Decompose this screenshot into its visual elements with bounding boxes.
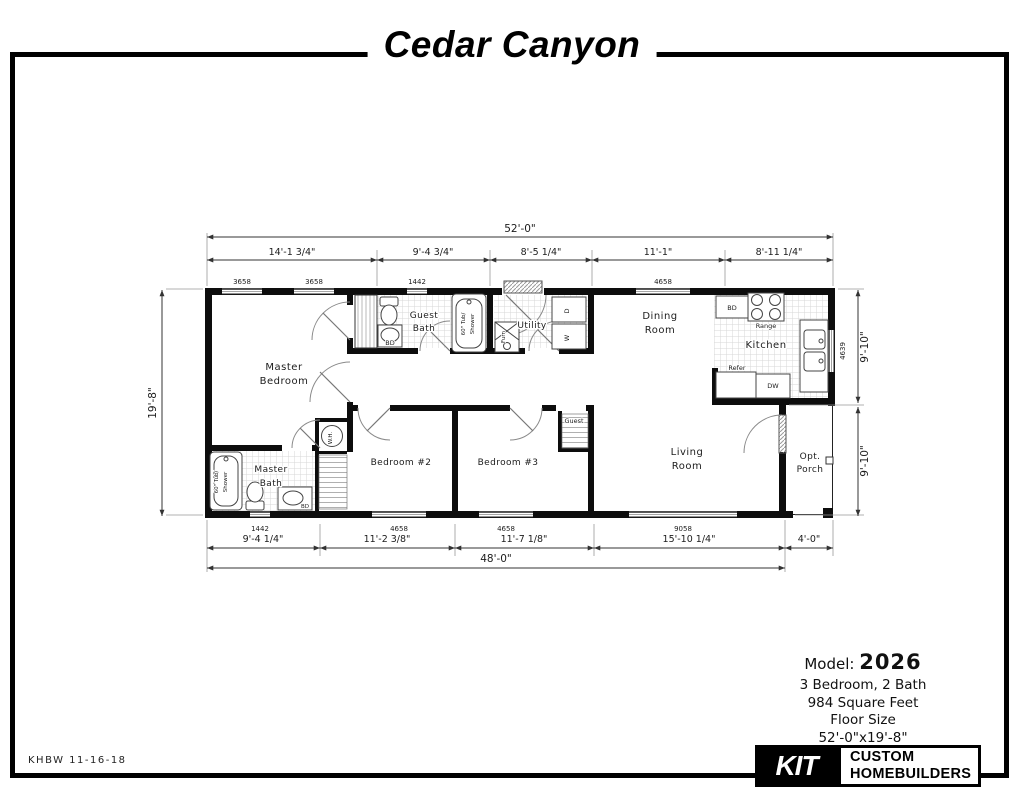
room-label-dining-2: Room (645, 325, 675, 336)
room-label-porch-2: Porch (797, 465, 824, 475)
master-closet (355, 295, 377, 348)
bed-bath-line: 3 Bedroom, 2 Bath (763, 677, 963, 695)
kitchen-bd-label: BD (727, 304, 736, 312)
model-number: 2026 (859, 650, 921, 674)
master-tub-label-2: Shower (223, 471, 229, 492)
room-label-guest-bath: Guest (410, 311, 439, 321)
dim-bottom-overall: 48'-0" (480, 553, 512, 565)
room-label-living-2: Room (672, 461, 702, 472)
furnace-label: Furn (501, 330, 507, 343)
dim-top-seg4: 11'-1" (644, 247, 673, 258)
window-4658-bed2 (372, 512, 426, 518)
range (748, 293, 784, 321)
window-label: 4658 (390, 525, 408, 533)
room-label-master-bedroom: Master (265, 362, 303, 373)
dim-top-seg5: 8'-11 1/4" (756, 247, 803, 258)
dw-label: DW (767, 382, 779, 390)
dryer-label: D (563, 308, 571, 313)
window-9058-living (629, 512, 737, 518)
dim-right-upper: 9'-10" (859, 331, 871, 363)
refer-label: Refer (728, 364, 746, 372)
dim-bottom-seg5: 4'-0" (798, 534, 821, 545)
room-label-master-bedroom-2: Bedroom (260, 376, 309, 387)
floor-size-label: Floor Size (763, 712, 963, 730)
porch-post (826, 457, 833, 464)
master-bath-sink-label: BD (301, 504, 309, 510)
room-label-guest-bath-2: Bath (413, 324, 436, 334)
room-label-guest-closet: Guest (564, 417, 584, 425)
builder-logo: KIT CUSTOM HOMEBUILDERS (755, 745, 981, 787)
furnace (495, 322, 519, 352)
linen-shelves (319, 455, 347, 509)
dim-top-seg3: 8'-5 1/4" (521, 247, 562, 258)
window-label: 1442 (251, 525, 269, 533)
front-door-slab (779, 415, 786, 453)
dim-bottom-seg4: 15'-10 1/4" (663, 534, 716, 545)
window-4658-top (636, 289, 690, 295)
window-label: 9058 (674, 525, 692, 533)
kit-logo-mark: KIT (755, 745, 838, 787)
model-info-block: Model: 2026 3 Bedroom, 2 Bath 984 Square… (763, 650, 963, 747)
water-heater-label: W.H. (328, 432, 334, 445)
window-label: 4639 (839, 342, 847, 360)
window-1442-bottom (250, 512, 270, 518)
dim-bottom-seg2: 11'-2 3/8" (364, 534, 411, 545)
window-1442-top (407, 289, 427, 295)
builder-name-line2: HOMEBUILDERS (850, 766, 978, 783)
room-label-utility: Utility (517, 321, 547, 331)
guest-tub-label-2: Shower (470, 313, 476, 334)
window-label: 4658 (654, 278, 672, 286)
guest-tub-label: 60" Tub/ (461, 313, 467, 336)
window-label: 1442 (408, 278, 426, 286)
window-4658-bed3 (479, 512, 533, 518)
window-3658-b (294, 289, 334, 295)
floor-plan-sheet: Cedar Canyon (0, 0, 1024, 791)
dim-right-lower: 9'-10" (859, 445, 871, 477)
window-4639-right (829, 330, 835, 372)
dim-top-overall: 52'-0" (504, 223, 536, 235)
model-label: Model: (804, 655, 854, 673)
room-label-master-bath-2: Bath (260, 479, 283, 489)
room-label-dining: Dining (642, 311, 677, 322)
room-label-living: Living (671, 447, 704, 458)
dim-bottom-seg3: 11'-7 1/8" (501, 534, 548, 545)
guest-bath-sink-label: BD (385, 339, 394, 347)
model-line: Model: 2026 (763, 650, 963, 674)
dim-top-seg1: 14'-1 3/4" (269, 247, 316, 258)
sqft-line: 984 Square Feet (763, 695, 963, 713)
window-3658-a (222, 289, 262, 295)
washer-label: W (563, 334, 571, 341)
porch-corner-post (823, 508, 833, 518)
master-tub-label: 60" Tub/ (214, 471, 220, 494)
guest-bath-toilet (380, 297, 398, 325)
dim-top-seg2: 9'-4 3/4" (413, 247, 454, 258)
entry-door-slab (504, 281, 542, 293)
room-label-bedroom3: Bedroom #3 (478, 458, 539, 468)
refrigerator (716, 372, 756, 398)
room-label-bedroom2: Bedroom #2 (371, 458, 432, 468)
room-label-porch: Opt. (800, 452, 821, 462)
window-label: 4658 (497, 525, 515, 533)
builder-name: CUSTOM HOMEBUILDERS (838, 745, 981, 787)
window-label: 3658 (305, 278, 323, 286)
range-label: Range (756, 322, 777, 330)
window-label: 3658 (233, 278, 251, 286)
dim-bottom-seg1: 9'-4 1/4" (243, 534, 284, 545)
room-label-master-bath: Master (254, 465, 287, 475)
room-label-kitchen: Kitchen (745, 340, 786, 351)
builder-name-line1: CUSTOM (850, 749, 978, 766)
guest-bath-tub (452, 294, 486, 352)
dim-left-overall: 19'-8" (147, 387, 159, 419)
plan-title: Cedar Canyon (368, 24, 657, 66)
porch-outline (793, 406, 833, 518)
kitchen-counter-sink (800, 320, 828, 392)
drawing-code: KHBW 11-16-18 (28, 755, 127, 766)
